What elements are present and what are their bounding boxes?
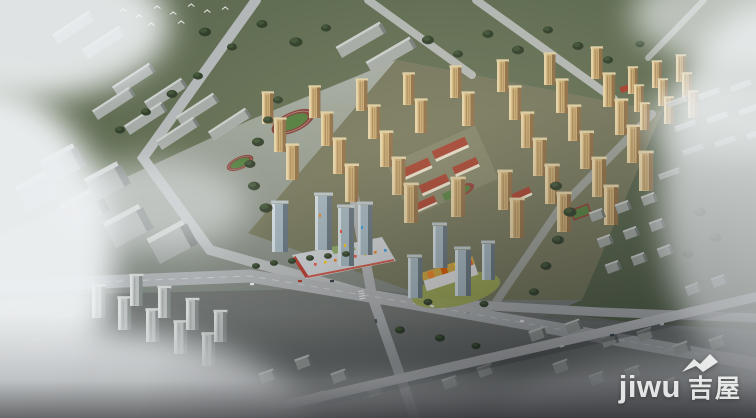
aerial-city-render: jiwu 吉屋	[0, 0, 756, 418]
render-scene	[0, 0, 756, 418]
watermark: jiwu 吉屋	[619, 371, 742, 402]
watermark-brand-latin: jiwu	[619, 371, 681, 402]
watermark-brand-cjk: 吉屋	[688, 377, 742, 402]
watermark-bird-logo-icon	[679, 353, 721, 373]
